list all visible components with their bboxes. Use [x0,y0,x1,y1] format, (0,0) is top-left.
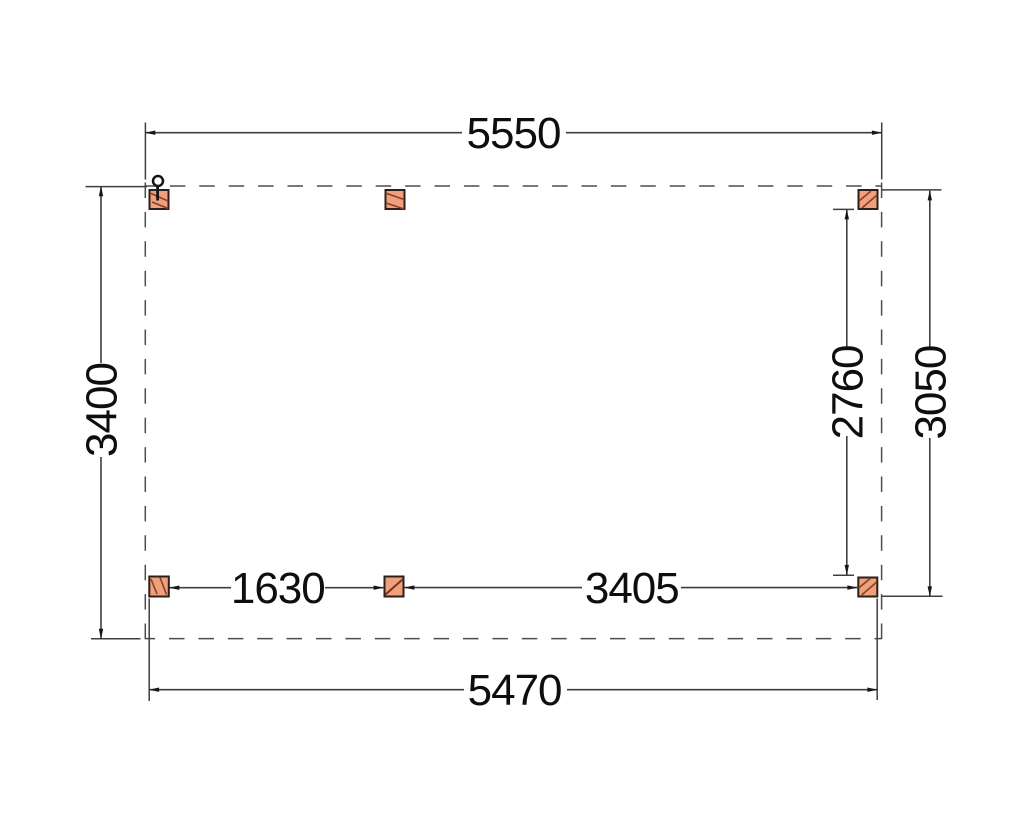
svg-text:5550: 5550 [467,109,561,158]
svg-text:3050: 3050 [906,346,955,440]
svg-text:3405: 3405 [585,564,679,613]
svg-text:1630: 1630 [231,564,325,613]
svg-text:5470: 5470 [468,666,562,715]
svg-text:3400: 3400 [78,363,127,457]
svg-text:2760: 2760 [823,345,872,439]
